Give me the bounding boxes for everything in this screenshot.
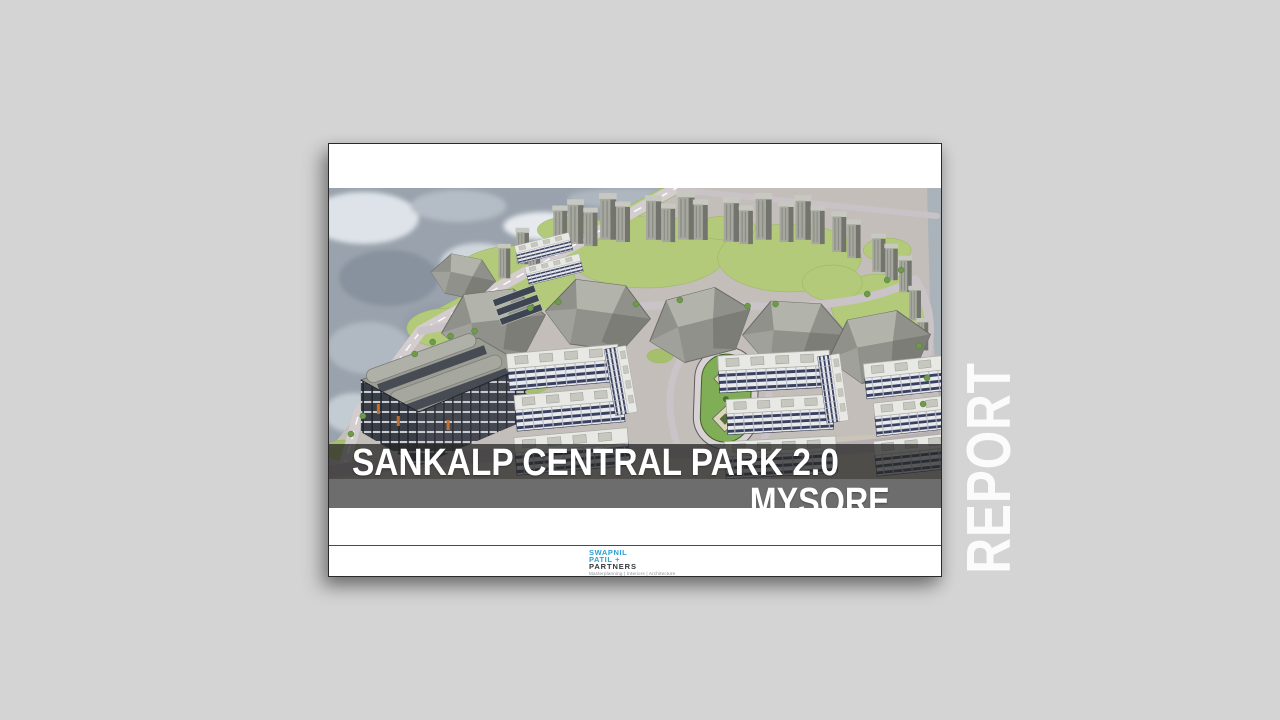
slide-top-margin <box>329 144 941 188</box>
swapnil-patil-partners-logo: SWAPNIL PATIL + PARTNERS Masterplanning … <box>589 549 675 577</box>
logo-tagline: Masterplanning | Interiors | Architectur… <box>589 571 675 577</box>
report-side-label-text: REPORT <box>959 362 1021 573</box>
footer-divider-line <box>329 545 941 546</box>
report-cover-slide: SANKALP CENTRAL PARK 2.0 MYSORE SWAPNIL … <box>328 143 942 577</box>
masterplan-render: SANKALP CENTRAL PARK 2.0 MYSORE <box>329 188 941 508</box>
report-side-label: REPORT <box>930 348 1050 588</box>
logo-line-partners: PARTNERS <box>589 563 675 570</box>
page-background: SANKALP CENTRAL PARK 2.0 MYSORE SWAPNIL … <box>0 0 1280 720</box>
slide-footer: SWAPNIL PATIL + PARTNERS Masterplanning … <box>329 508 941 576</box>
slide-title: SANKALP CENTRAL PARK 2.0 <box>352 444 839 482</box>
